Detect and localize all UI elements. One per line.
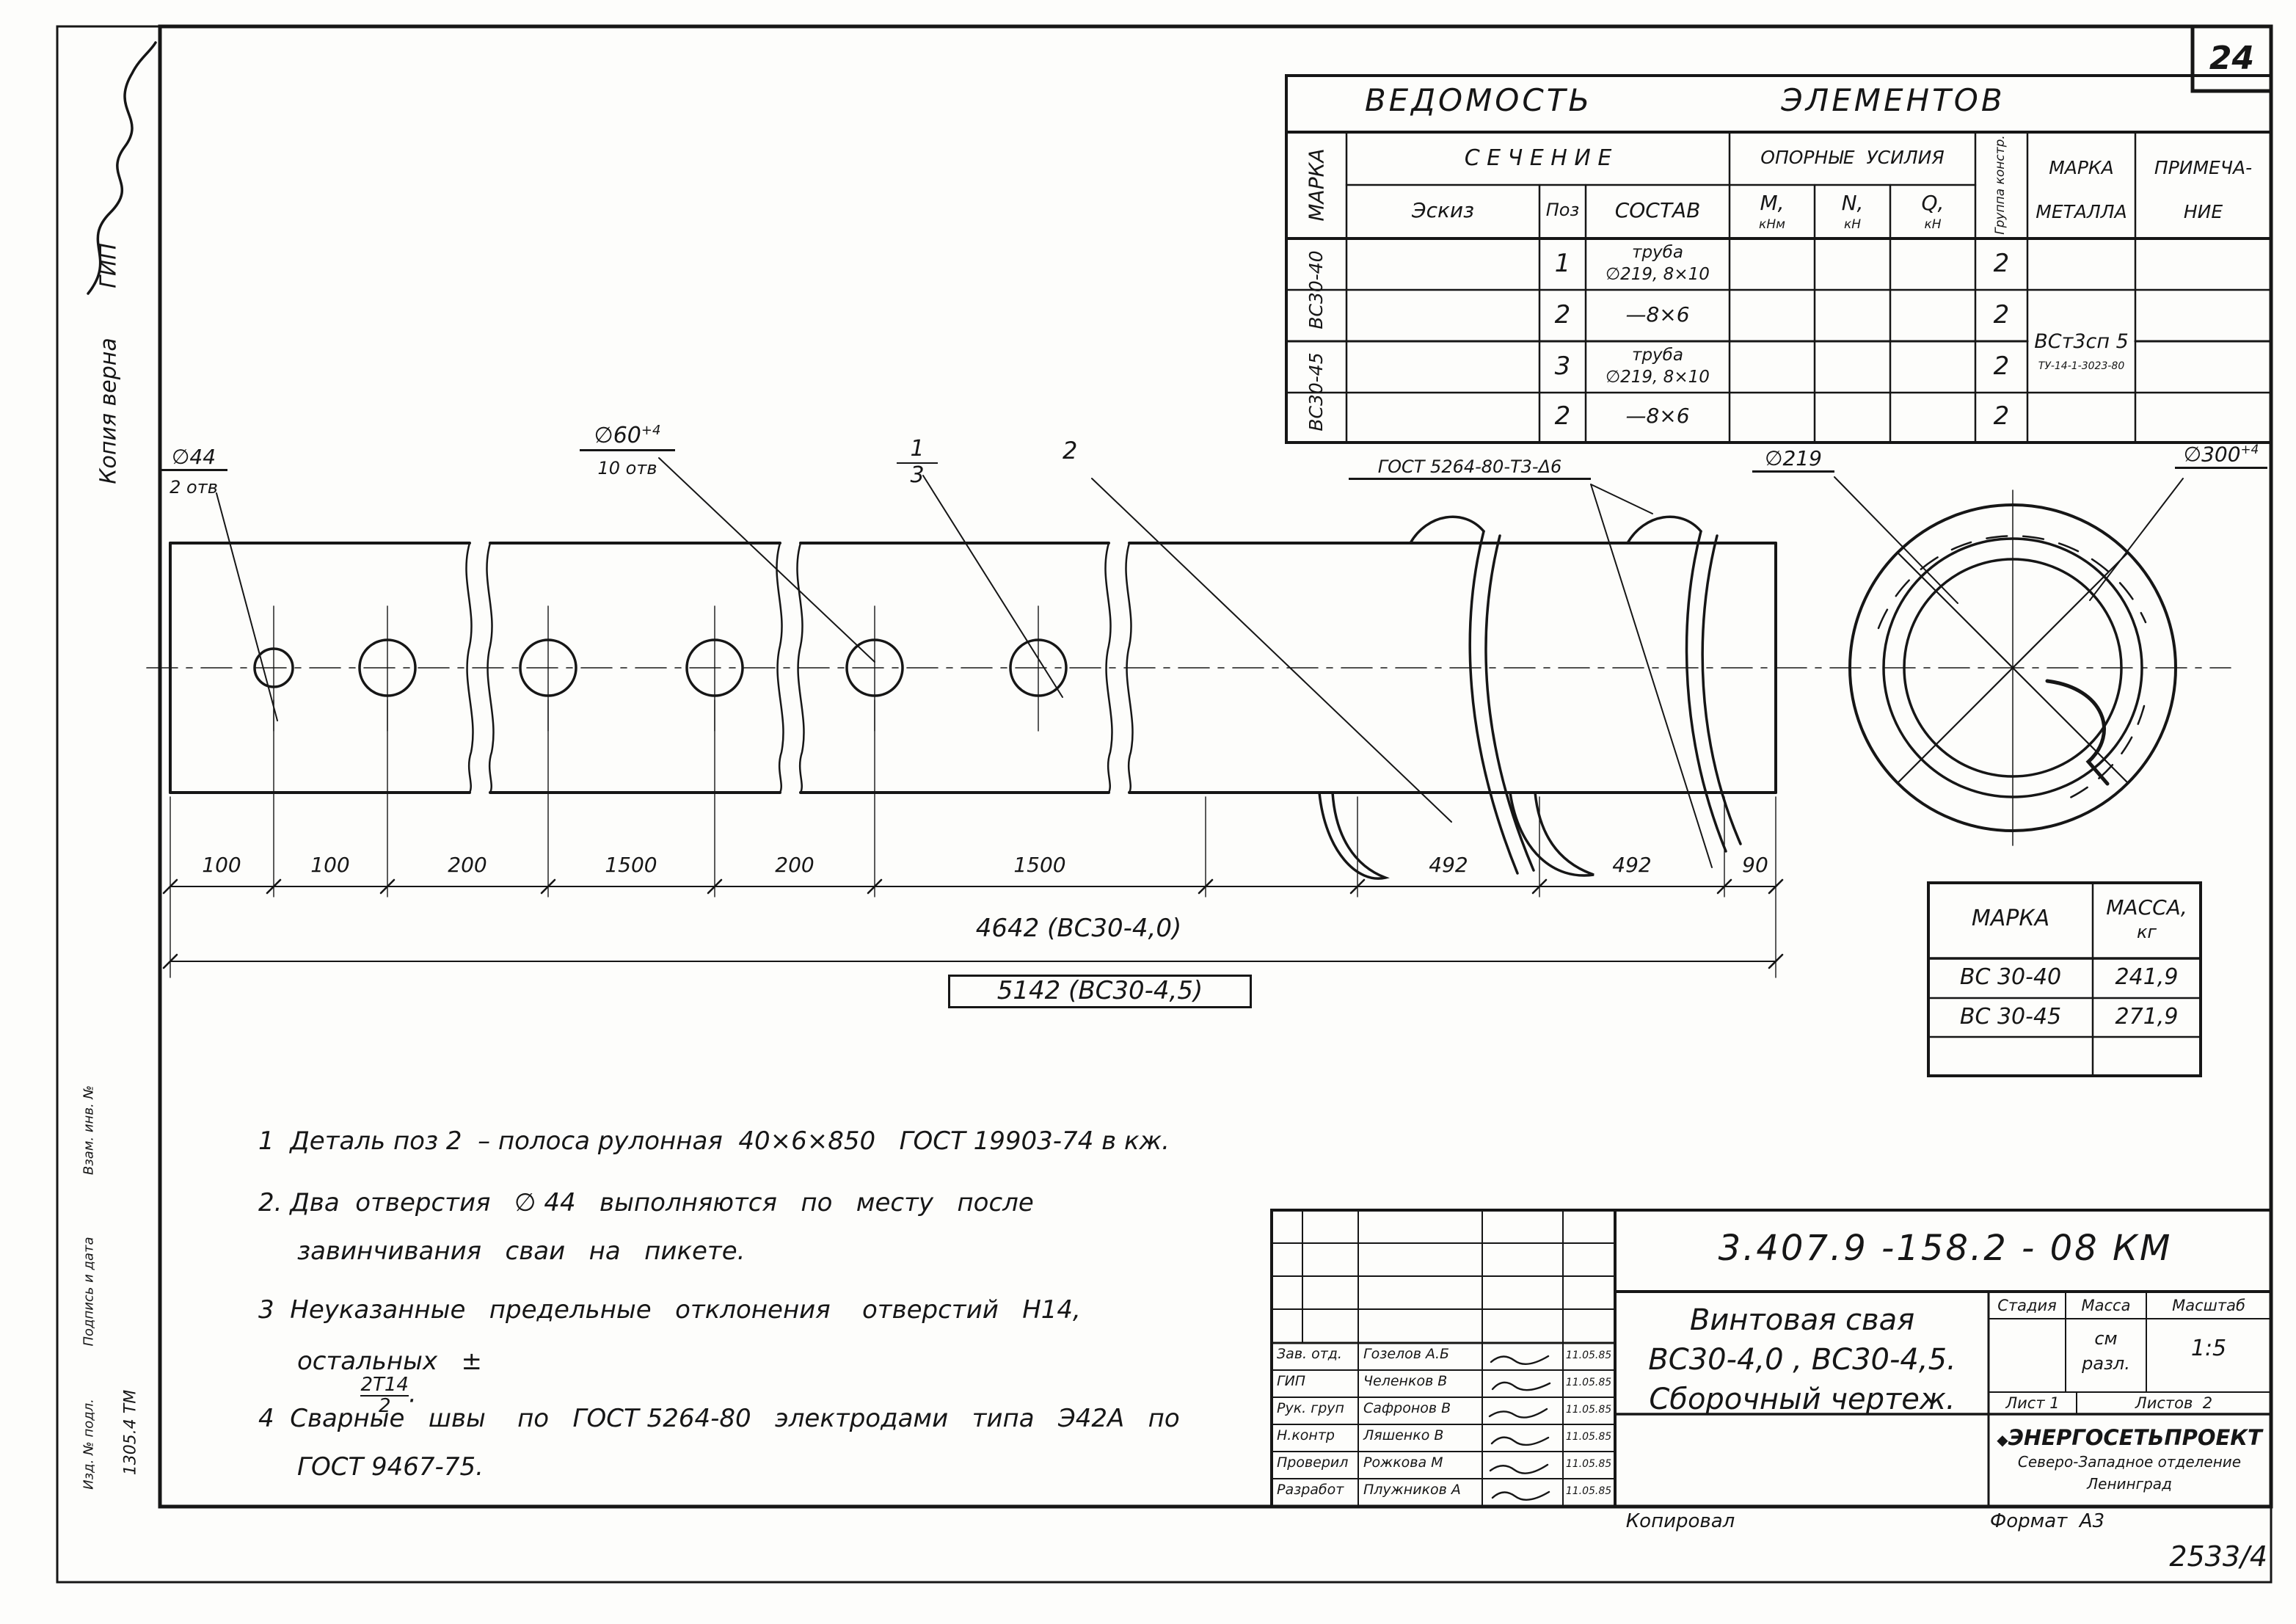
archive-number: 2533/4 <box>2135 1543 2267 1572</box>
mass-col-kg: кг <box>2093 923 2201 942</box>
metal-standard: ТУ-14-1-3023-80 <box>2027 361 2135 372</box>
stamp-label-2: Подпись и дата <box>83 1237 97 1346</box>
dia219-label: ∅219 <box>1752 448 1834 473</box>
row-sostav: ∅219, 8×10 <box>1586 368 1730 386</box>
col-n: N, <box>1815 192 1890 214</box>
organization-city: Ленинград <box>1990 1476 2269 1492</box>
dim-90: 90 <box>1722 854 1788 875</box>
vedomost-title-1: ВЕДОМОСТЬ <box>1357 84 1600 117</box>
note-4-line-2: ГОСТ 9467-75. <box>297 1454 484 1481</box>
note-3-text: остальных ± <box>297 1347 482 1376</box>
metal-grade: ВСт3сп 5 <box>2027 332 2135 352</box>
row-gruppa: 2 <box>1975 354 2027 380</box>
drawing-sheet: 24 2533/4 Копировал Формат А3 Копия верн… <box>0 0 2296 1624</box>
mass-row-marka: ВС 30-45 <box>1928 1005 2093 1029</box>
row-poz: 2 <box>1539 302 1586 329</box>
signature-name: Челенков В <box>1363 1374 1481 1389</box>
col-primechanie-1: ПРИМЕЧА- <box>2135 159 2271 178</box>
drawing-title-line-2: ВС30-4,0 , ВС30-4,5. <box>1622 1344 1982 1375</box>
signature-name: Сафронов В <box>1363 1402 1481 1416</box>
note-4-line-1: 4 Сварные швы по ГОСТ 5264-80 электродам… <box>258 1406 1180 1432</box>
col-q-units: кН <box>1890 219 1975 232</box>
col-gruppa-konstr: Группа констр. <box>1994 135 2008 235</box>
energosetproekt-logo-icon: ◆ <box>1997 1431 2008 1449</box>
col-m: М, <box>1730 192 1815 214</box>
signature-date: 11.05.85 <box>1564 1486 1614 1497</box>
row-gruppa: 2 <box>1975 251 2027 277</box>
overall-dim-vs30-40: 4642 (ВС30-4,0) <box>917 916 1240 942</box>
mass-value-2: разл. <box>2066 1355 2146 1373</box>
col-sechenie: С Е Ч Е Н И Е <box>1346 147 1730 170</box>
kopiroval-label: Копировал <box>1611 1512 1750 1532</box>
dim-100: 100 <box>189 854 255 875</box>
signature-date: 11.05.85 <box>1564 1405 1614 1416</box>
stage-header: Стадия <box>1989 1297 2066 1314</box>
col-m-units: кНм <box>1730 219 1815 232</box>
col-primechanie-2: НИЕ <box>2135 203 2271 222</box>
mass-row-value: 271,9 <box>2093 1005 2201 1029</box>
organization-branch: Северо-Западное отделение <box>1990 1454 2269 1470</box>
stamp-label-3: Изд. № подл. <box>83 1399 97 1490</box>
dim-492: 492 <box>1415 854 1482 875</box>
note-2-line-1: 2. Два отверстия ∅ 44 выполняются по мес… <box>258 1190 1034 1217</box>
fraction-numerator: 2Т14 <box>360 1375 409 1395</box>
dia60-qty: 10 отв <box>580 459 675 478</box>
marka-group-1: ВС30-40 <box>1307 250 1326 329</box>
scale-header: Масштаб <box>2146 1297 2271 1314</box>
callout-pos-1: 1 <box>897 437 938 464</box>
callout-pos-1-3: 13 <box>897 437 938 487</box>
overall-dim-vs30-45: 5142 (ВС30-4,5) <box>948 975 1252 1008</box>
inventory-number: 1305.4 ТМ <box>122 1390 139 1475</box>
col-poz: Поз <box>1539 201 1586 219</box>
signature-role: Зав. отд. <box>1277 1347 1357 1362</box>
dia300-label: ∅300+4 <box>2175 443 2267 469</box>
row-gruppa: 2 <box>1975 302 2027 329</box>
signature-date: 11.05.85 <box>1564 1432 1614 1443</box>
row-poz: 2 <box>1539 404 1586 430</box>
signature-name: Плужников А <box>1363 1483 1481 1498</box>
row-sostav: труба <box>1586 346 1730 364</box>
document-number: 3.407.9 -158.2 - 08 КМ <box>1652 1230 2239 1267</box>
weld-designation: ГОСТ 5264-80-Т3-Δ6 <box>1349 458 1591 480</box>
drawing-title-line-1: Винтовая свая <box>1622 1305 1982 1336</box>
mass-col-marka: МАРКА <box>1928 907 2093 931</box>
signature-name: Ляшенко В <box>1363 1429 1481 1443</box>
copy-role: ГИП <box>97 243 120 288</box>
col-sostav: СОСТАВ <box>1586 200 1730 221</box>
dia300-tolerance: +4 <box>2241 442 2259 456</box>
dim-492: 492 <box>1599 854 1665 875</box>
col-opornye-usiliya: ОПОРНЫЕ УСИЛИЯ <box>1730 148 1975 167</box>
dim-100: 100 <box>297 854 363 875</box>
vedomost-grid <box>1286 76 2271 443</box>
copy-note: Копия верна <box>97 338 120 484</box>
row-sostav: —8×6 <box>1586 405 1730 426</box>
mass-col-massa: МАССА, <box>2093 897 2201 918</box>
signature-date: 11.05.85 <box>1564 1459 1614 1470</box>
drawing-title-line-3: Сборочный чертеж. <box>1622 1384 1982 1415</box>
row-sostav: ∅219, 8×10 <box>1586 266 1730 283</box>
helix-blade <box>1319 517 1741 878</box>
row-poz: 3 <box>1539 354 1586 380</box>
organization-name: ◆ЭНЕРГОСЕТЬПРОЕКТ <box>1990 1427 2269 1449</box>
mass-row-marka: ВС 30-40 <box>1928 966 2093 989</box>
dia60-tolerance: +4 <box>641 423 661 438</box>
callout-pos-2: 2 <box>1063 439 1077 464</box>
signature-role: Рук. груп <box>1277 1402 1357 1416</box>
signature-date: 11.05.85 <box>1564 1350 1614 1361</box>
signature-role: Проверил <box>1277 1456 1357 1471</box>
format-label: Формат А3 <box>1967 1512 2128 1532</box>
col-q: Q, <box>1890 192 1975 214</box>
hole-axes <box>274 606 1038 731</box>
row-sostav: —8×6 <box>1586 304 1730 325</box>
dim-1500: 1500 <box>1007 854 1073 875</box>
signature-role: ГИП <box>1277 1374 1357 1389</box>
note-2-line-2: завинчивания сваи на пикете. <box>297 1239 745 1265</box>
dia300-value: ∅300 <box>2184 442 2241 466</box>
leader-lines <box>216 458 2183 867</box>
organization-title: ЭНЕРГОСЕТЬПРОЕКТ <box>2008 1425 2262 1450</box>
dia60-value: ∅60 <box>594 423 641 448</box>
dia44-qty: 2 отв <box>160 478 227 497</box>
signature-name: Гозелов А.Б <box>1363 1347 1481 1362</box>
col-n-units: кН <box>1815 219 1890 232</box>
row-gruppa: 2 <box>1975 404 2027 430</box>
signature-role: Н.контр <box>1277 1429 1357 1443</box>
note-3-line-1: 3 Неуказанные предельные отклонения отве… <box>258 1297 1081 1324</box>
signature-role: Разработ <box>1277 1483 1357 1498</box>
vedomost-title-2: ЭЛЕМЕНТОВ <box>1761 84 2025 117</box>
col-marka-metalla-1: МАРКА <box>2027 159 2135 178</box>
scale-value: 1:5 <box>2146 1337 2271 1361</box>
mass-row-value: 241,9 <box>2093 966 2201 989</box>
marka-group-2: ВС30-45 <box>1307 352 1326 431</box>
row-sostav: труба <box>1586 244 1730 261</box>
dia60-label: ∅60+4 <box>580 424 675 451</box>
col-marka-metalla-2: МЕТАЛЛА <box>2027 203 2135 222</box>
callout-pos-3: 3 <box>897 464 938 487</box>
sheet-number-value: 24 <box>2209 42 2254 76</box>
col-eskiz: Эскиз <box>1346 200 1539 221</box>
signature-name: Рожкова М <box>1363 1456 1481 1471</box>
signature-date: 11.05.85 <box>1564 1377 1614 1388</box>
dim-1500: 1500 <box>598 854 664 875</box>
row-poz: 1 <box>1539 251 1586 277</box>
mass-header: Масса <box>2066 1297 2146 1314</box>
stamp-label-1: Взам. инв. № <box>83 1085 97 1175</box>
sheet-number: 24 <box>2193 26 2271 91</box>
dim-200: 200 <box>762 854 828 875</box>
dia44-label: ∅44 <box>160 446 227 471</box>
sheet-label: Лист 1 <box>1989 1395 2077 1411</box>
col-marka: МАРКА <box>1305 148 1327 221</box>
dim-200: 200 <box>434 854 500 875</box>
mass-value-1: см <box>2066 1330 2146 1348</box>
sheets-label: Листов 2 <box>2077 1395 2271 1411</box>
note-1: 1 Деталь поз 2 – полоса рулонная 40×6×85… <box>258 1129 1170 1155</box>
